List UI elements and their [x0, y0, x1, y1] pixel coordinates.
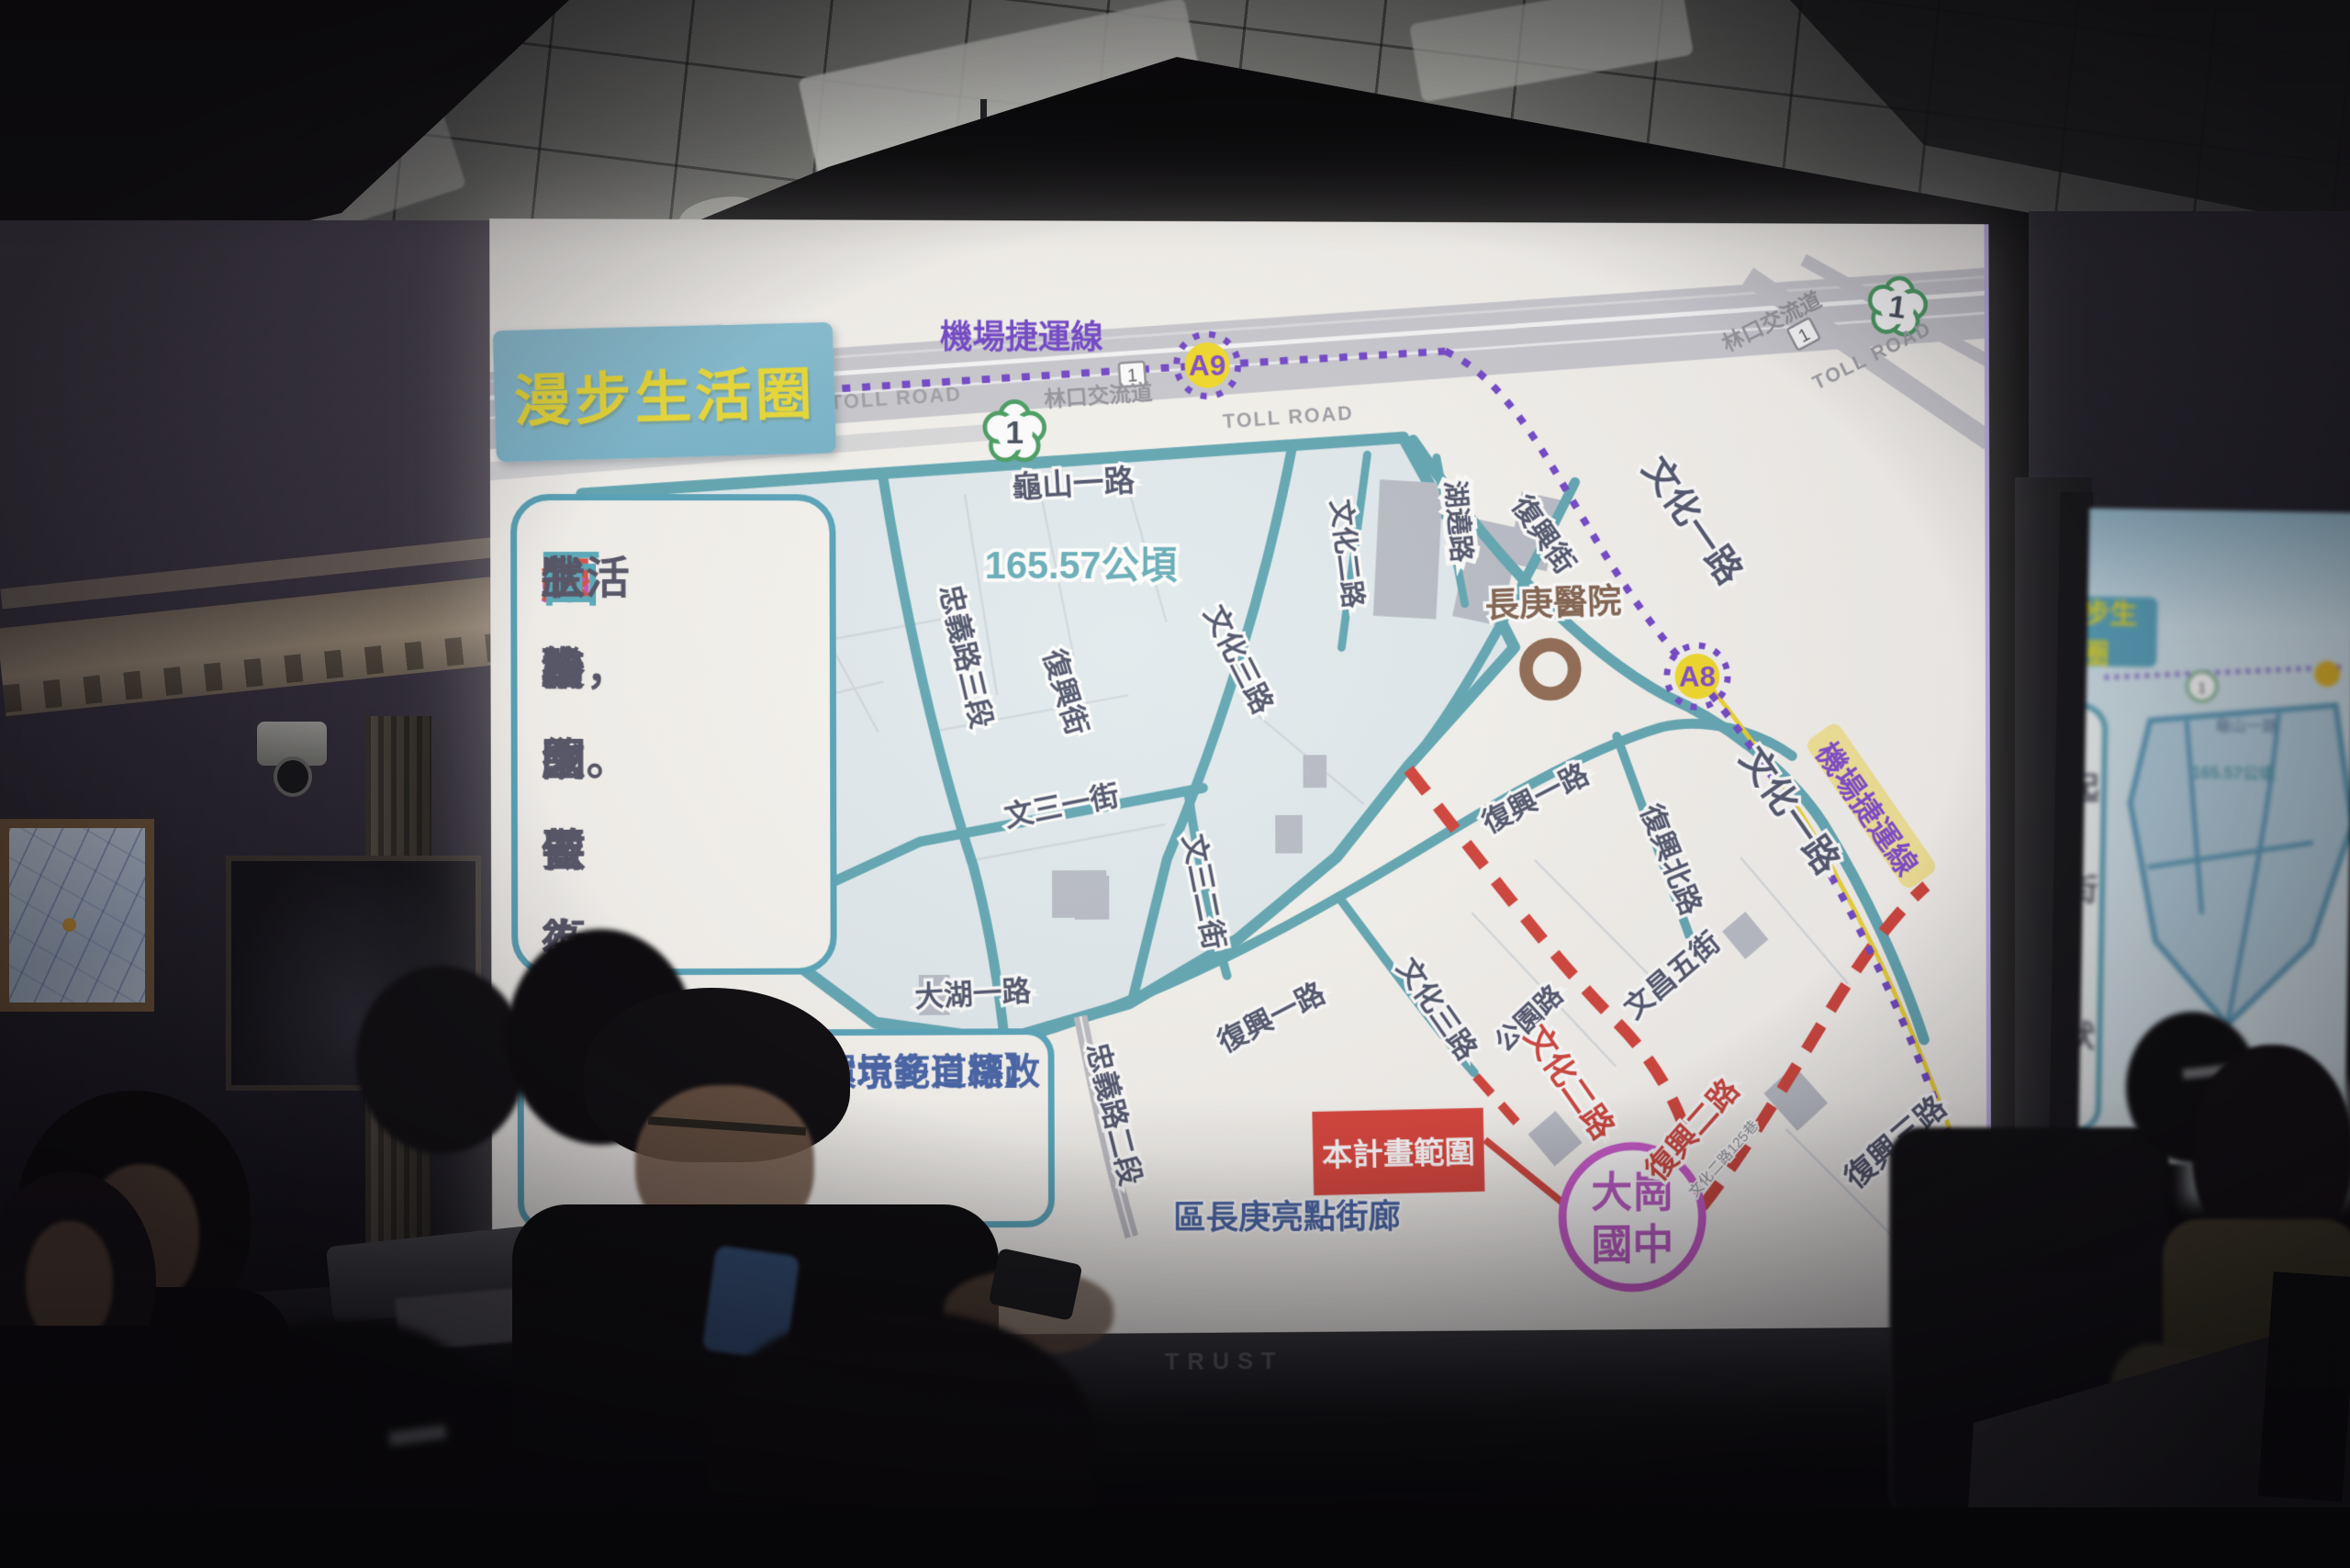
- dentil-trim: [3, 631, 521, 712]
- station-a9-label: A9: [1189, 349, 1225, 382]
- slide-title-badge: 漫步生活圈: [493, 322, 837, 462]
- laptop: [2258, 1271, 2350, 1502]
- road-label: 文化三路: [1391, 952, 1484, 1067]
- bottom-caption: 區長庚亮點街廊: [1173, 1198, 1401, 1237]
- svg-text:165.57公頃: 165.57公頃: [2192, 764, 2277, 784]
- road-label: 文昌五街: [1617, 925, 1726, 1025]
- framed-map-picture: [0, 819, 154, 1012]
- road-label: 復興一路: [1476, 756, 1595, 839]
- hospital-landmark: [1526, 644, 1574, 693]
- description-box: 由校園做為起 點，由主要街 廊沿線串聯， 最終改善面狀 生活路網。: [510, 494, 837, 976]
- school-label-2: 國中: [1591, 1220, 1673, 1268]
- road-label: 忠義路二段: [1080, 1039, 1147, 1189]
- area-size-label: 165.57公頃: [985, 543, 1178, 587]
- meeting-room-photo: A9 A8 1: [0, 0, 2350, 1568]
- road-label: 復興一路: [1212, 976, 1331, 1059]
- framed-map-content: [9, 828, 145, 1002]
- road-label-red: 文化二路: [1517, 1018, 1622, 1147]
- screen-brand: TRUST: [1165, 1346, 1436, 1376]
- highway-1-number: 1: [1005, 413, 1024, 451]
- sprinkler-icon: [973, 121, 993, 130]
- hospital-label: 長庚醫院: [1484, 582, 1622, 625]
- legend-label: 本計畫範圍: [1322, 1136, 1475, 1174]
- road-label: 大湖一路: [914, 974, 1033, 1014]
- framed-map-marker: [62, 918, 76, 932]
- road-label-red: 復興二路: [1639, 1072, 1746, 1189]
- svg-text:龜山一路: 龜山一路: [2215, 717, 2277, 735]
- svg-text:TOLL ROAD: TOLL ROAD: [1222, 401, 1354, 433]
- svg-text:1: 1: [2198, 681, 2206, 697]
- svg-text:機場捷運線: 機場捷運線: [940, 318, 1103, 355]
- person-silhouette: [356, 966, 526, 1154]
- station-a8-label: A8: [1679, 660, 1716, 693]
- road-label: 文化一路: [1635, 450, 1750, 592]
- sprinkler-icon: [980, 99, 987, 127]
- road-label: 復興北路: [1634, 799, 1707, 920]
- slide-title-text: 漫步生活圈: [512, 347, 816, 437]
- ptz-camera-lens: [274, 756, 312, 797]
- foreground-shadow: [0, 1507, 2350, 1568]
- legend-plan-scope: 本計畫範圍: [1312, 1108, 1484, 1195]
